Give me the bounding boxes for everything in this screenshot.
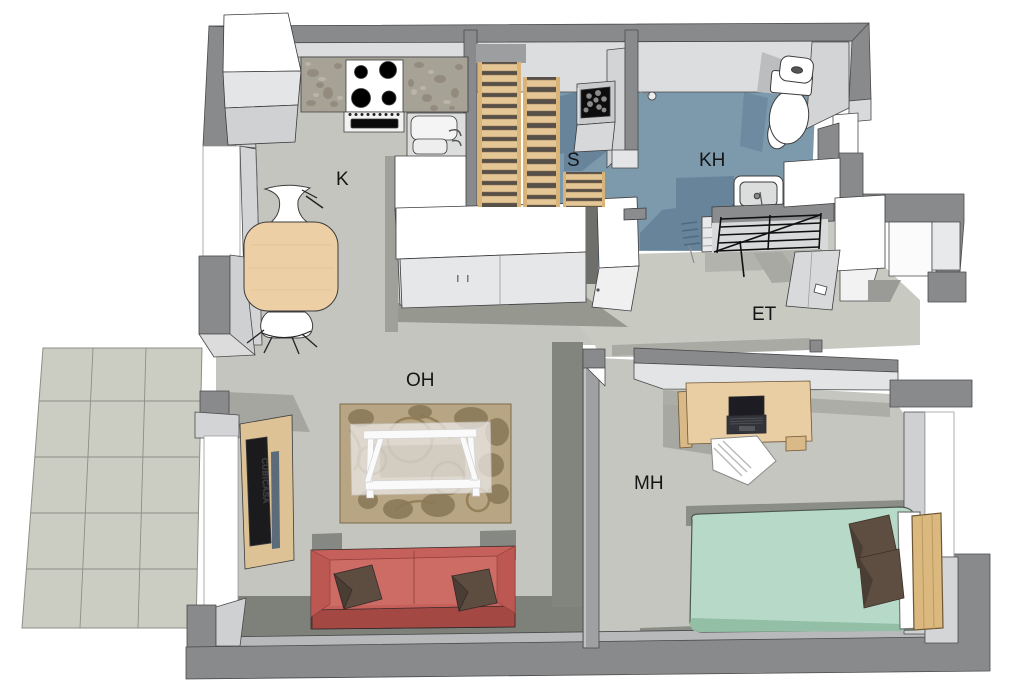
svg-text:MH: MH — [634, 473, 664, 494]
svg-text:S: S — [567, 150, 580, 171]
svg-text:K: K — [336, 169, 349, 190]
svg-text:KH: KH — [699, 150, 725, 171]
svg-text:OH: OH — [406, 370, 435, 391]
svg-text:CUBICASA: CUBICASA — [260, 458, 271, 504]
svg-text:ET: ET — [752, 304, 777, 325]
